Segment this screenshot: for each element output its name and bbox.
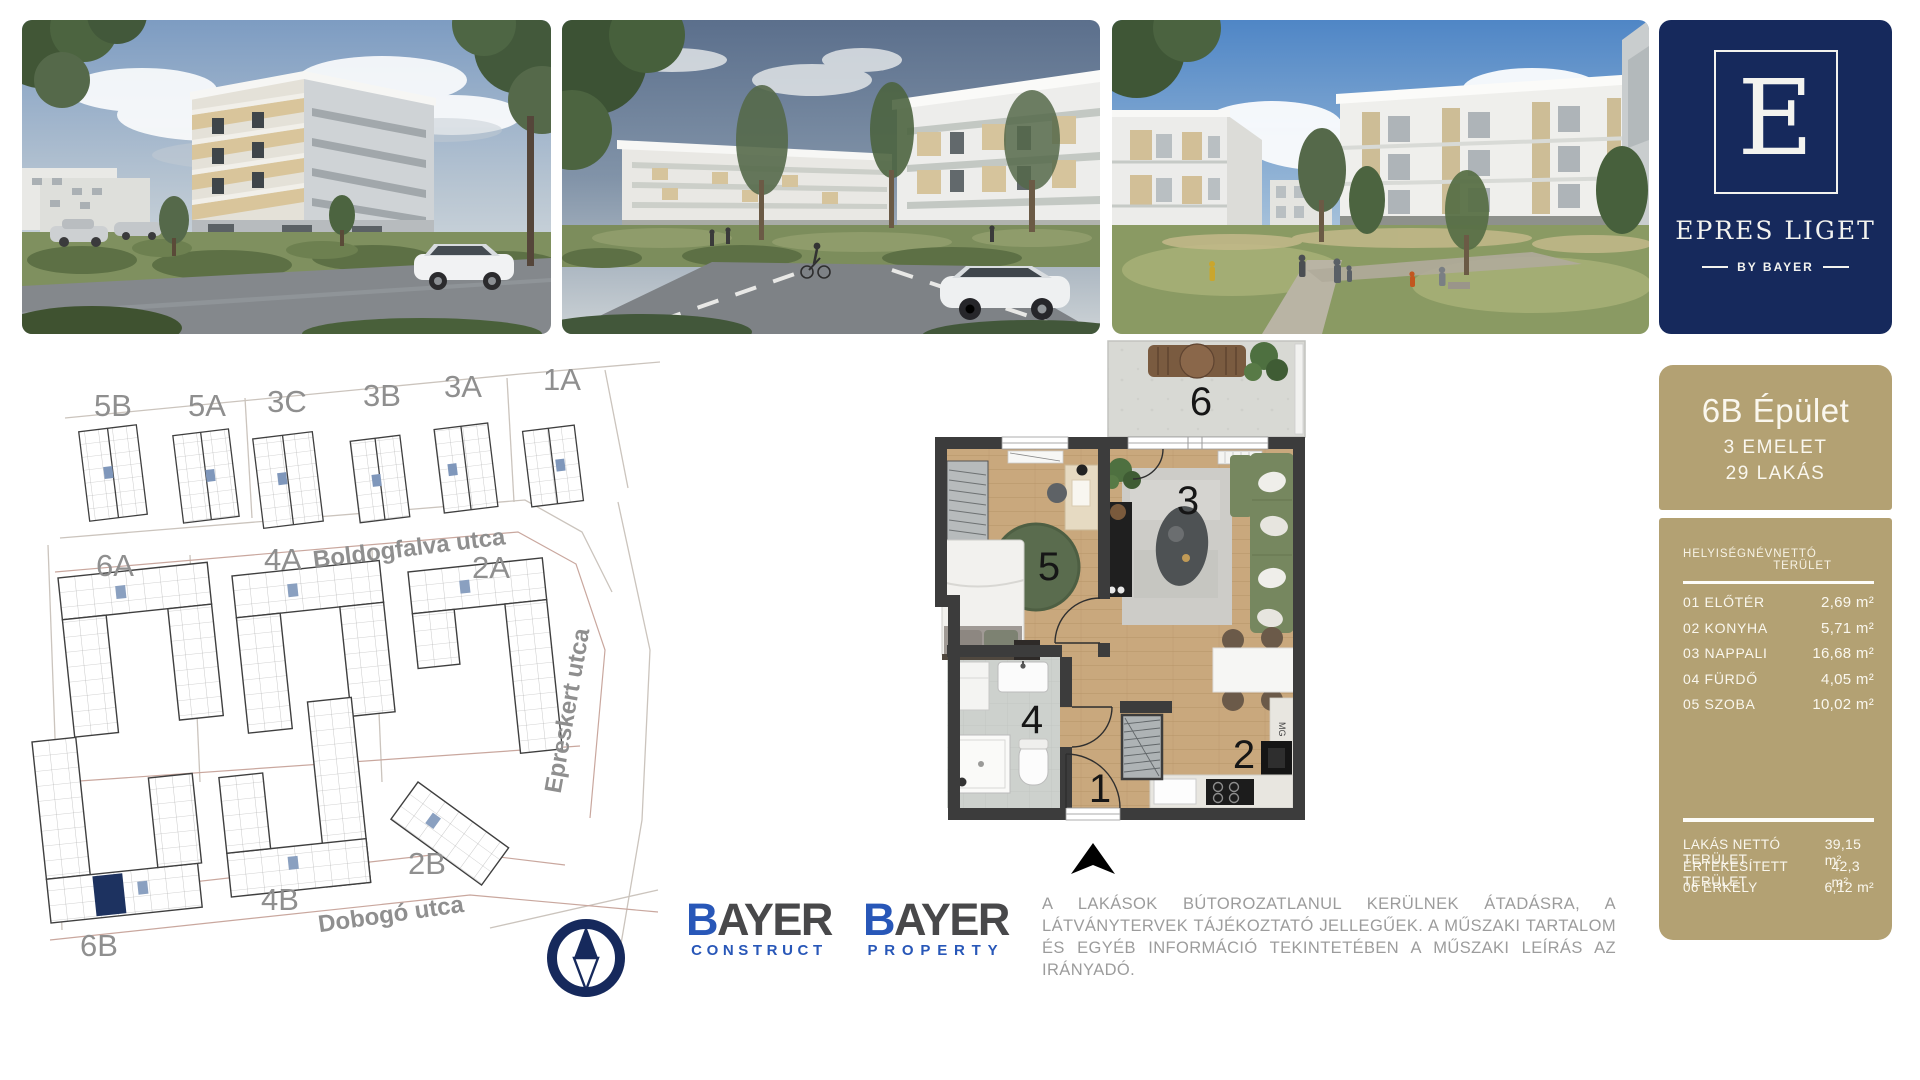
building-3C-footprint (253, 432, 324, 529)
top-row-buildings (79, 423, 584, 528)
building-5A-footprint (173, 429, 239, 523)
building-6B-footprint (32, 726, 206, 923)
entrance-arrow-icon (1071, 843, 1115, 874)
room-number-6: 6 (1190, 380, 1212, 424)
summary-row: LAKÁS NETTÓ TERÜLET 39,15 m² (1683, 836, 1874, 858)
label-6B: 6B (80, 928, 118, 963)
render-photo-corner-building (22, 20, 551, 334)
highlighted-unit (92, 873, 126, 916)
table-row: 04 FÜRDŐ 4,05 m² (1683, 671, 1874, 697)
fridge-label: MG (1277, 722, 1287, 737)
building-5B-footprint (79, 425, 148, 521)
label-3A: 3A (444, 369, 482, 404)
right-building-wing (892, 70, 1100, 246)
label-5B: 5B (94, 388, 132, 423)
room-number-2: 2 (1233, 733, 1255, 777)
byline-dash-left (1702, 266, 1728, 268)
table-divider (1683, 581, 1874, 584)
floor-plan: MG (920, 330, 1320, 880)
label-5A: 5A (188, 388, 226, 423)
bayer-wordmark: BAYER (863, 899, 1009, 941)
compass-icon (552, 924, 620, 992)
floors-subtitle: 3 EMELET (1659, 437, 1892, 459)
label-4B: 4B (261, 882, 299, 917)
desk-chair (1047, 483, 1067, 503)
bench (1448, 282, 1470, 289)
logo-frame: E (1714, 50, 1838, 194)
building-6A-footprint (58, 562, 224, 737)
courtyard-illustration (1112, 20, 1649, 334)
summary-divider (1683, 818, 1874, 822)
table-row: 02 KONYHA 5,71 m² (1683, 620, 1874, 646)
summary-row: ÉRTÉKESÍTETT TERÜLET 42,3 m² (1683, 858, 1874, 880)
byline-text: BY BAYER (1737, 260, 1814, 274)
room-number-1: 1 (1089, 767, 1111, 811)
table-row: 05 SZOBA 10,02 m² (1683, 696, 1874, 722)
project-name: EPRES LIGET (1659, 216, 1892, 245)
bayer-construct-logo: BAYER CONSTRUCT (686, 899, 832, 959)
summary-rows: LAKÁS NETTÓ TERÜLET 39,15 m² ÉRTÉKESÍTET… (1683, 836, 1874, 901)
table-row: 01 ELŐTÉR 2,69 m² (1683, 594, 1874, 620)
balcony-table (1148, 344, 1246, 378)
panel-header: 6B Épület 3 EMELET 29 LAKÁS (1659, 365, 1892, 510)
epres-liget-logo-card: E EPRES LIGET BY BAYER (1659, 20, 1892, 334)
unit-info-panel: 6B Épület 3 EMELET 29 LAKÁS HELYISÉGNÉV … (1659, 365, 1892, 940)
street-label-dobogo: Dobogó utca (316, 891, 466, 938)
byline-dash-right (1823, 266, 1849, 268)
bayer-property-logo: BAYER PROPERTY (863, 899, 1009, 959)
flyer-page: E EPRES LIGET BY BAYER (0, 0, 1920, 1080)
room-number-3: 3 (1177, 479, 1199, 523)
building-1A-footprint (523, 425, 584, 507)
room-number-5: 5 (1038, 545, 1060, 589)
render-photo-street-view (562, 20, 1100, 334)
render-photo-courtyard (1112, 20, 1649, 334)
apartments-subtitle: 29 LAKÁS (1659, 463, 1892, 485)
area-table: HELYISÉGNÉV NETTÓ TERÜLET 01 ELŐTÉR 2,69… (1659, 518, 1892, 940)
left-building (1112, 110, 1262, 235)
table-row: 03 NAPPALI 16,68 m² (1683, 645, 1874, 671)
entry-wardrobe (1122, 715, 1162, 779)
label-1A: 1A (543, 362, 581, 397)
col-room-name: HELYISÉGNÉV (1683, 548, 1773, 572)
legal-disclaimer: A LAKÁSOK BÚTOROZATLANUL KERÜLNEK ÁTADÁS… (1042, 893, 1616, 981)
corner-building-illustration (22, 20, 551, 334)
logo-letter: E (1738, 66, 1814, 170)
label-2B: 2B (408, 846, 446, 881)
construct-label: CONSTRUCT (686, 942, 832, 959)
bayer-wordmark: BAYER (686, 899, 832, 941)
lower-buildings (32, 558, 562, 923)
building-2A-footprint (408, 558, 562, 763)
label-3B: 3B (363, 378, 401, 413)
label-2A: 2A (472, 550, 510, 585)
label-3C: 3C (267, 384, 307, 419)
building-3B-footprint (350, 435, 410, 522)
street-view-illustration (562, 20, 1100, 334)
kitchen-sink (1154, 779, 1196, 804)
area-table-header: HELYISÉGNÉV NETTÓ TERÜLET (1683, 548, 1874, 572)
room-number-4: 4 (1021, 698, 1043, 742)
dining-table (1213, 648, 1295, 692)
building-title: 6B Épület (1659, 392, 1892, 430)
label-4A: 4A (264, 542, 302, 577)
label-6A: 6A (96, 548, 134, 583)
byline: BY BAYER (1659, 260, 1892, 274)
building-3A-footprint (434, 423, 498, 513)
col-net-area: NETTÓ TERÜLET (1773, 548, 1874, 572)
property-label: PROPERTY (863, 942, 1009, 959)
site-plan: 5B 5A 3C 3B 3A 1A 6A 4A 2A 2B 4B 6B Bold… (20, 350, 660, 1010)
main-building (190, 71, 436, 244)
